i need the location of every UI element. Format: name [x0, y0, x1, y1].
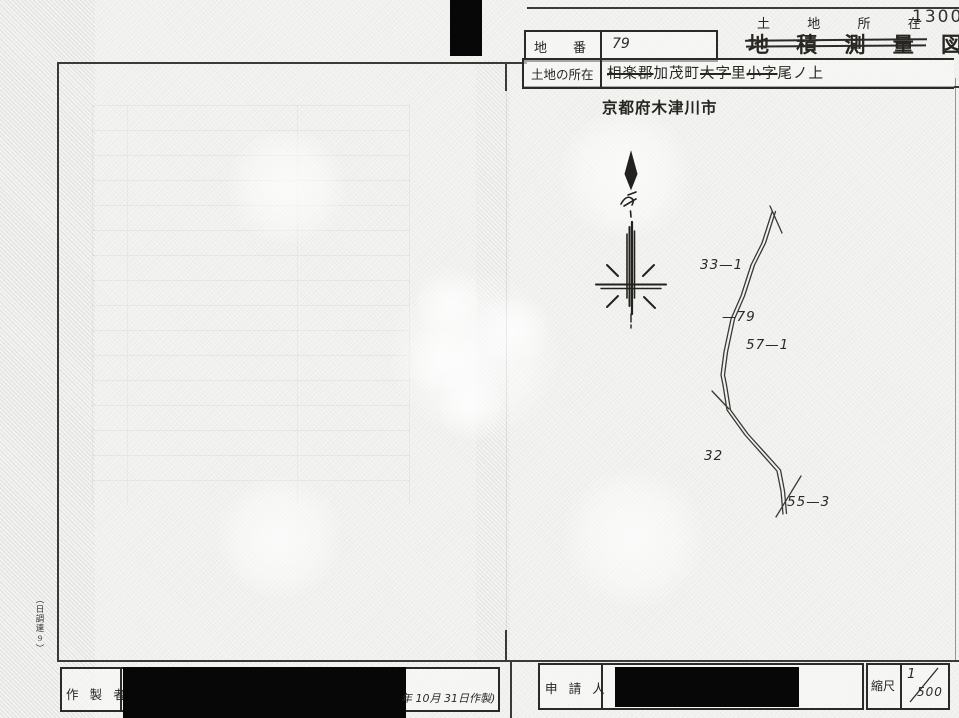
- watermark-flourish-bottomleft: [212, 478, 347, 598]
- form-code-vertical: （日調連9）: [34, 595, 46, 654]
- scale-denominator: 500: [917, 685, 943, 699]
- frame-bottom-border: [57, 660, 959, 662]
- scale-label: 縮尺: [871, 677, 895, 694]
- applicant-label: 申 請 人: [545, 678, 609, 697]
- parcel-label-55-3: 55—3: [787, 494, 830, 510]
- parcel-label-57-1: 57—1: [746, 337, 789, 353]
- redaction-box-maker: [123, 667, 406, 718]
- location-part-struck: 小字: [747, 66, 778, 82]
- fold-crease: [506, 91, 507, 630]
- location-part: 里: [731, 66, 747, 82]
- page-top-rule: [527, 7, 959, 9]
- location-part: 尾ノ上: [778, 66, 825, 82]
- location-part-struck: 大字: [700, 66, 731, 82]
- lot-number-label: 地 番: [534, 37, 586, 56]
- left-edge-texture: [0, 0, 95, 718]
- redaction-box-top: [450, 0, 482, 56]
- land-location-value: 相楽郡加茂町大字里小字尾ノ上: [607, 62, 824, 83]
- fold-tick-top: [505, 62, 507, 91]
- bleedthrough-table-ghost: [92, 105, 410, 505]
- north-arrow-icon: [588, 148, 674, 330]
- watermark-flower-center: [390, 268, 560, 443]
- land-location-label: 土地の所在: [531, 64, 594, 83]
- scanned-cadastral-map: { "page": { "doc_number": "1300", "title…: [0, 0, 959, 718]
- parcel-boundary-drawing: [675, 190, 835, 535]
- frame-left-border: [57, 62, 59, 661]
- land-location-box-divider: [600, 60, 602, 87]
- parcel-label-32: 32: [704, 448, 723, 464]
- parcel-label-33-1: 33—1: [700, 257, 743, 273]
- parcel-label-79: —79: [722, 309, 756, 325]
- fold-shadow-texture: [476, 60, 510, 660]
- lot-number-box-divider: [600, 32, 602, 60]
- location-part: 加茂町: [654, 66, 701, 82]
- made-date-note: 年 10月 31日作製): [401, 690, 495, 706]
- frame-top-border: [57, 62, 527, 64]
- city-correction-note: 京都府木津川市: [602, 96, 718, 118]
- lot-number-value: 79: [612, 36, 630, 52]
- maker-label: 作 製 者: [66, 684, 130, 703]
- location-part-struck: 相楽郡: [607, 66, 654, 82]
- fold-tick-bottom: [505, 630, 507, 661]
- watermark-flourish-topleft: [222, 132, 352, 242]
- redaction-box-applicant: [615, 667, 799, 707]
- fold-seam-bottom: [510, 661, 512, 718]
- frame-right-border: [955, 78, 956, 661]
